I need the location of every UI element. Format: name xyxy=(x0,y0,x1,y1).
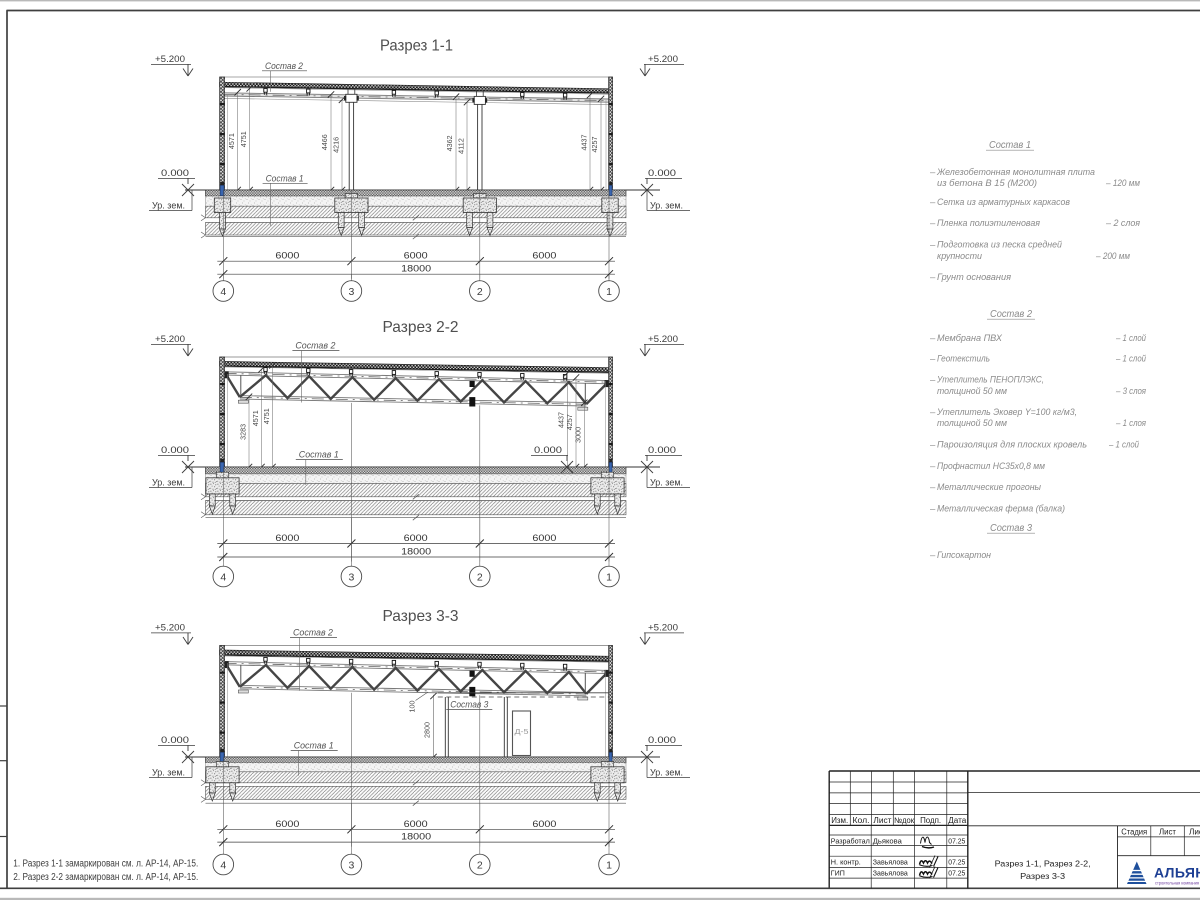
svg-text:–: – xyxy=(930,354,936,365)
svg-text:0.000: 0.000 xyxy=(161,445,189,456)
svg-text:4437: 4437 xyxy=(557,412,566,428)
svg-text:6000: 6000 xyxy=(404,819,428,829)
svg-text:Разработал: Разработал xyxy=(831,836,870,845)
svg-text:1: 1 xyxy=(606,571,612,583)
svg-text:Состав 1: Состав 1 xyxy=(294,741,334,752)
svg-text:–: – xyxy=(930,240,936,251)
svg-text:3: 3 xyxy=(348,286,354,298)
svg-text:0.000: 0.000 xyxy=(648,168,676,179)
svg-text:Мембрана ПВХ: Мембрана ПВХ xyxy=(937,333,1003,344)
svg-text:Утеплитель Эковер Y=100 кг/м3,: Утеплитель Эковер Y=100 кг/м3, xyxy=(936,407,1077,418)
svg-text:+5.200: +5.200 xyxy=(648,623,678,634)
svg-text:– 1 слой: – 1 слой xyxy=(1115,354,1146,365)
svg-text:6000: 6000 xyxy=(404,533,428,543)
svg-text:Дата: Дата xyxy=(948,816,967,825)
svg-text:крупности: крупности xyxy=(937,251,983,262)
svg-text:Пленка полиэтиленовая: Пленка полиэтиленовая xyxy=(937,218,1040,229)
svg-text:Состав 2: Состав 2 xyxy=(265,61,304,72)
svg-text:– 1 слой: – 1 слой xyxy=(1108,440,1139,451)
svg-text:Ур. зем.: Ур. зем. xyxy=(650,478,683,489)
svg-text:Н. контр.: Н. контр. xyxy=(831,858,861,867)
svg-text:6000: 6000 xyxy=(404,251,428,261)
svg-text:Гипсокартон: Гипсокартон xyxy=(937,550,992,561)
svg-text:18000: 18000 xyxy=(401,547,431,557)
svg-text:– 2 слоя: – 2 слоя xyxy=(1105,218,1140,229)
svg-text:+5.200: +5.200 xyxy=(155,334,185,345)
svg-text:100: 100 xyxy=(408,701,417,713)
svg-text:Разрез 2-2: Разрез 2-2 xyxy=(383,319,459,336)
svg-text:4466: 4466 xyxy=(320,134,329,150)
svg-text:Состав 2: Состав 2 xyxy=(990,309,1032,320)
svg-text:АЛЬЯНС: АЛЬЯНС xyxy=(1154,865,1200,881)
svg-text:–: – xyxy=(930,504,936,515)
svg-text:Состав 3: Состав 3 xyxy=(450,700,489,711)
svg-text:Ур. зем.: Ур. зем. xyxy=(152,768,185,779)
svg-text:4112: 4112 xyxy=(456,138,465,154)
svg-text:– 1 слоя: – 1 слоя xyxy=(1115,418,1146,429)
svg-text:Завьялова: Завьялова xyxy=(873,858,909,867)
svg-text:07.25: 07.25 xyxy=(948,836,965,845)
svg-text:Ур. зем.: Ур. зем. xyxy=(650,201,683,212)
svg-text:Железобетонная монолитная пли: Железобетонная монолитная плита xyxy=(936,167,1095,178)
svg-text:Стадия: Стадия xyxy=(1121,827,1147,836)
svg-text:толщиной 50 мм: толщиной 50 мм xyxy=(937,386,1007,397)
svg-text:0.000: 0.000 xyxy=(648,735,676,746)
svg-text:2. Разрез 2-2 замаркирован см.: 2. Разрез 2-2 замаркирован см. л. АР-14,… xyxy=(13,872,198,883)
svg-text:0.000: 0.000 xyxy=(161,735,189,746)
svg-text:Сетка из арматурных каркасов: Сетка из арматурных каркасов xyxy=(937,197,1070,208)
svg-text:Изм.: Изм. xyxy=(831,816,848,825)
svg-text:Ур. зем.: Ур. зем. xyxy=(152,478,185,489)
svg-text:–: – xyxy=(930,333,936,344)
svg-text:4362: 4362 xyxy=(445,135,454,151)
svg-text:4437: 4437 xyxy=(579,135,588,151)
svg-text:4: 4 xyxy=(220,286,226,298)
svg-text:07.25: 07.25 xyxy=(948,869,965,878)
svg-text:Кол.: Кол. xyxy=(853,816,870,825)
svg-text:–: – xyxy=(930,272,936,283)
svg-text:Ур. зем.: Ур. зем. xyxy=(152,201,185,212)
svg-text:–: – xyxy=(930,461,936,472)
svg-text:Грунт основания: Грунт основания xyxy=(937,272,1011,283)
svg-text:0.000: 0.000 xyxy=(648,445,676,456)
svg-text:Утеплитель ПЕНОПЛЭКС,: Утеплитель ПЕНОПЛЭКС, xyxy=(936,375,1044,386)
svg-text:Металлическая ферма (балка): Металлическая ферма (балка) xyxy=(937,504,1065,515)
svg-text:Пароизоляция для плоских крове: Пароизоляция для плоских кровель xyxy=(937,440,1087,451)
svg-text:– 3 слоя: – 3 слоя xyxy=(1115,386,1146,397)
svg-text:+5.200: +5.200 xyxy=(155,623,185,634)
svg-text:4751: 4751 xyxy=(239,131,248,147)
svg-text:№док: №док xyxy=(894,816,914,825)
svg-text:Ур. зем.: Ур. зем. xyxy=(650,768,683,779)
svg-text:1. Разрез 1-1 замаркирован см.: 1. Разрез 1-1 замаркирован см. л. АР-14,… xyxy=(13,859,198,870)
svg-text:0.000: 0.000 xyxy=(161,168,189,179)
svg-text:Состав 2: Состав 2 xyxy=(293,628,334,639)
svg-text:Разрез 1-1: Разрез 1-1 xyxy=(380,38,453,55)
svg-text:–: – xyxy=(930,440,936,451)
svg-text:3: 3 xyxy=(348,571,354,583)
svg-text:–: – xyxy=(930,167,936,178)
svg-text:07.25: 07.25 xyxy=(948,858,965,867)
svg-text:4571: 4571 xyxy=(251,410,260,426)
svg-text:Профнастил НС35х0,8 мм: Профнастил НС35х0,8 мм xyxy=(937,461,1045,472)
svg-text:ГИП: ГИП xyxy=(831,869,845,878)
svg-text:Д-5: Д-5 xyxy=(515,727,529,736)
svg-text:1: 1 xyxy=(606,859,612,871)
svg-text:18000: 18000 xyxy=(401,832,431,842)
svg-text:Состав 3: Состав 3 xyxy=(990,523,1032,534)
svg-text:6000: 6000 xyxy=(532,533,556,543)
svg-text:+5.200: +5.200 xyxy=(155,54,185,65)
svg-text:Состав 1: Состав 1 xyxy=(989,140,1031,151)
svg-text:4: 4 xyxy=(220,859,226,871)
svg-text:Состав 2: Состав 2 xyxy=(295,341,336,352)
svg-text:3000: 3000 xyxy=(574,427,583,443)
svg-text:– 200 мм: – 200 мм xyxy=(1095,251,1130,262)
svg-text:– 1 слой: – 1 слой xyxy=(1115,333,1146,344)
svg-text:Разрез 3-3: Разрез 3-3 xyxy=(1020,871,1065,881)
svg-text:–: – xyxy=(930,550,936,561)
svg-text:Дьякова: Дьякова xyxy=(873,836,903,845)
svg-text:из бетона В 15 (М200): из бетона В 15 (М200) xyxy=(937,178,1037,189)
svg-text:2800: 2800 xyxy=(423,722,432,738)
svg-text:4571: 4571 xyxy=(227,133,236,149)
svg-text:2: 2 xyxy=(477,571,483,583)
svg-text:строительная компания: строительная компания xyxy=(1155,881,1199,886)
svg-text:Лис: Лис xyxy=(1189,827,1200,836)
svg-text:6000: 6000 xyxy=(275,819,299,829)
svg-text:Состав 1: Состав 1 xyxy=(266,173,304,184)
svg-text:4: 4 xyxy=(220,571,226,583)
svg-text:Завьялова: Завьялова xyxy=(873,869,909,878)
svg-text:2: 2 xyxy=(477,859,483,871)
svg-text:+5.200: +5.200 xyxy=(648,334,678,345)
svg-text:– 120 мм: – 120 мм xyxy=(1105,178,1140,189)
svg-text:6000: 6000 xyxy=(275,251,299,261)
svg-text:Подп.: Подп. xyxy=(920,816,941,825)
svg-text:Лист: Лист xyxy=(873,816,891,825)
svg-text:18000: 18000 xyxy=(401,264,431,274)
svg-text:Металлические прогоны: Металлические прогоны xyxy=(937,482,1041,493)
svg-text:4751: 4751 xyxy=(262,408,271,424)
svg-text:Геотекстиль: Геотекстиль xyxy=(937,354,990,365)
svg-text:–: – xyxy=(930,482,936,493)
svg-text:4216: 4216 xyxy=(331,137,340,153)
svg-text:толщиной 50 мм: толщиной 50 мм xyxy=(937,418,1007,429)
svg-text:Лист: Лист xyxy=(1159,827,1176,836)
svg-text:0.000: 0.000 xyxy=(534,445,562,456)
svg-text:+5.200: +5.200 xyxy=(648,54,678,65)
svg-text:6000: 6000 xyxy=(532,251,556,261)
svg-text:–: – xyxy=(930,218,936,229)
svg-text:–: – xyxy=(930,407,936,418)
svg-text:Разрез 1-1, Разрез 2-2,: Разрез 1-1, Разрез 2-2, xyxy=(995,859,1091,869)
svg-text:–: – xyxy=(930,375,936,386)
svg-text:–: – xyxy=(930,197,936,208)
svg-text:4257: 4257 xyxy=(590,136,599,152)
svg-text:6000: 6000 xyxy=(275,533,299,543)
svg-text:3283: 3283 xyxy=(238,424,247,440)
svg-text:1: 1 xyxy=(606,286,612,298)
svg-text:2: 2 xyxy=(477,286,483,298)
svg-text:3: 3 xyxy=(348,859,354,871)
svg-text:6000: 6000 xyxy=(532,819,556,829)
svg-text:Состав 1: Состав 1 xyxy=(299,450,339,461)
svg-text:Разрез 3-3: Разрез 3-3 xyxy=(383,608,459,625)
svg-text:Подготовка из песка средней: Подготовка из песка средней xyxy=(937,240,1063,251)
